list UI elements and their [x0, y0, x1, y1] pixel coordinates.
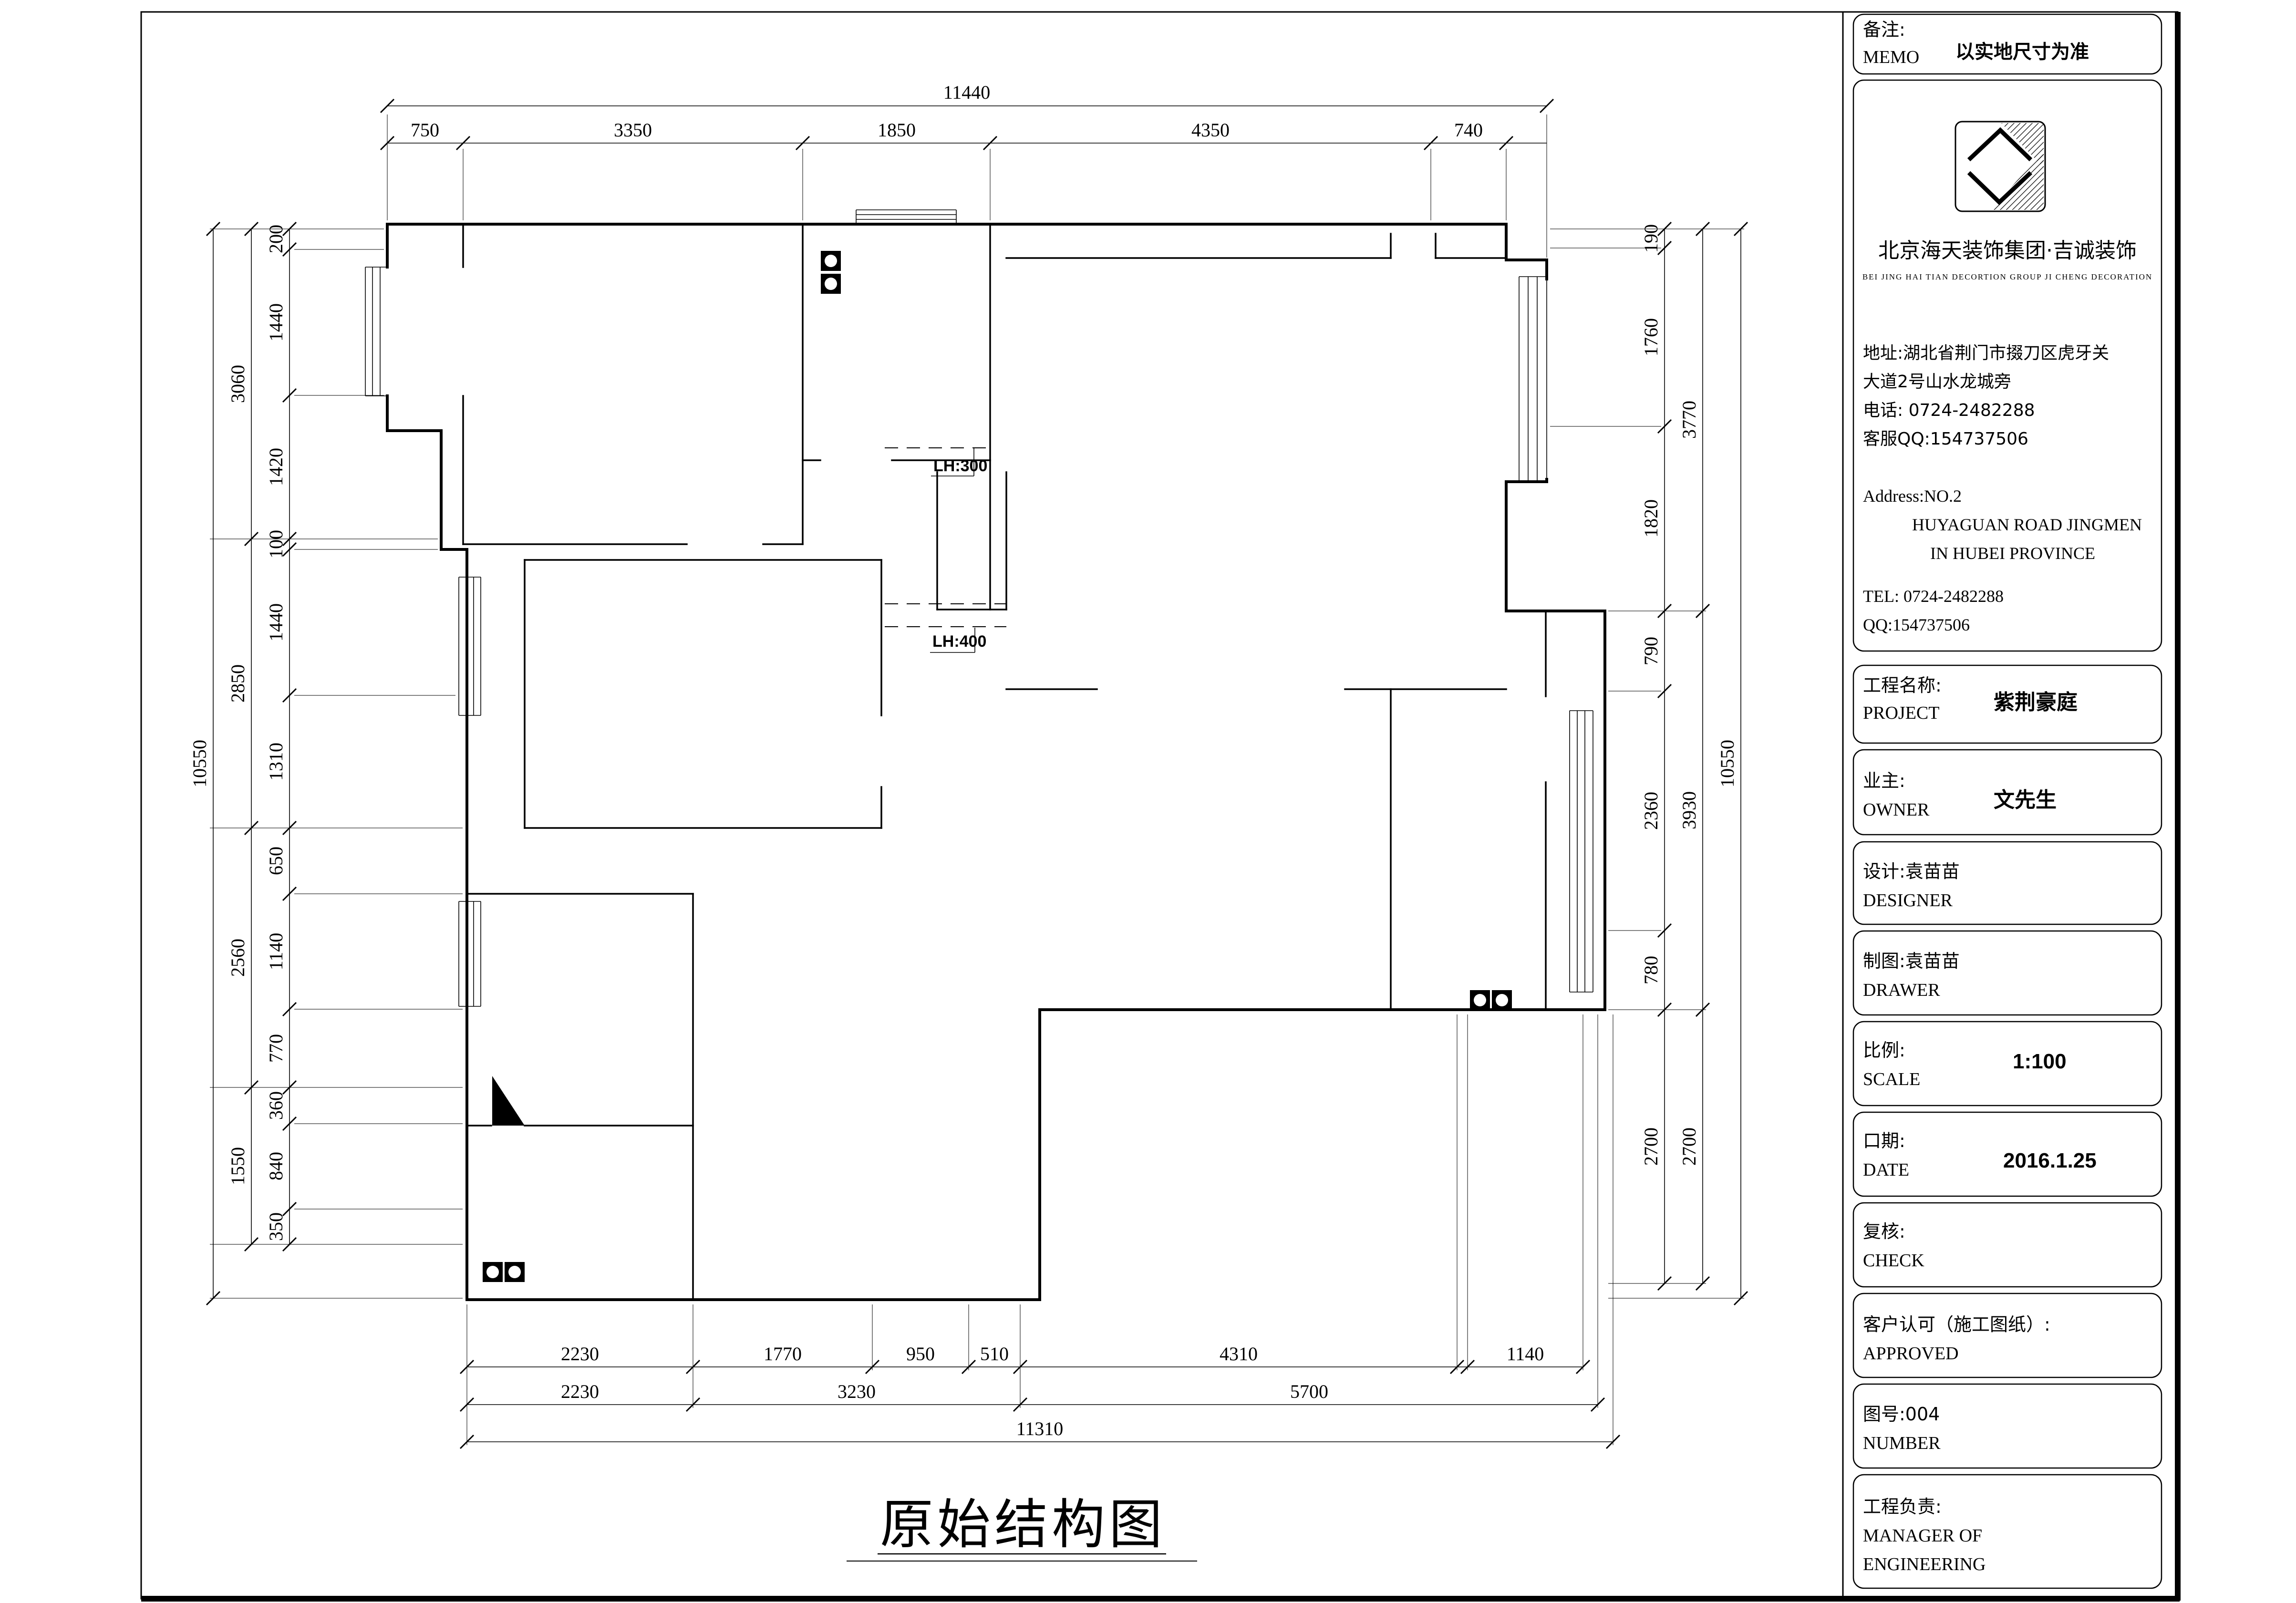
dim-label: 3930 — [1678, 791, 1700, 829]
beam-annotations: LH:300 LH:400 — [885, 448, 1006, 652]
dim-label: 2850 — [227, 664, 248, 703]
project-label-en: PROJECT — [1863, 703, 1939, 723]
dim-label: 1440 — [265, 303, 287, 341]
designer-label-en: DESIGNER — [1863, 890, 1953, 910]
company-address-1: 地址:湖北省荆门市掇刀区虎牙关 — [1863, 343, 2109, 363]
dim-label: 1440 — [265, 603, 287, 641]
drawing-sheet: LH:300 LH:400 11440 750 3350 1850 4350 7… — [0, 0, 2296, 1603]
memo-value: 以实地尺寸为准 — [1955, 41, 2089, 62]
dim-label: 1140 — [265, 933, 287, 971]
title-block: 备注: MEMO 以实地尺寸为准 北京海天装饰集团·吉诚装饰 BEI JING … — [1853, 14, 2162, 1588]
dim-label: 100 — [265, 530, 287, 558]
owner-value: 文先生 — [1994, 788, 2057, 812]
dim-label: 780 — [1640, 956, 1662, 984]
approved-label-cn: 客户认可（施工图纸）: — [1863, 1314, 2050, 1335]
manager-label-en-2: ENGINEERING — [1863, 1554, 1986, 1574]
manager-label-cn: 工程负责: — [1863, 1496, 1942, 1517]
company-address-en-3: IN HUBEI PROVINCE — [1930, 544, 2095, 563]
dim-label: 10550 — [189, 740, 210, 787]
dim-label: 1770 — [764, 1343, 802, 1365]
project-value: 紫荆豪庭 — [1994, 691, 2078, 714]
approved-label-en: APPROVED — [1863, 1344, 1959, 1364]
dim-label: 1850 — [878, 119, 916, 141]
drawer-label-en: DRAWER — [1863, 980, 1940, 1000]
scale-label-en: SCALE — [1863, 1069, 1920, 1089]
company-name-en: BEI JING HAI TIAN DECORTION GROUP JI CHE… — [1862, 272, 2152, 281]
dim-label: 1550 — [227, 1147, 248, 1185]
date-label-en: DATE — [1863, 1160, 1909, 1180]
memo-label-en: MEMO — [1863, 47, 1919, 67]
number-label-en: NUMBER — [1863, 1433, 1941, 1453]
dim-label: 1760 — [1640, 318, 1662, 356]
company-qq: 客服QQ:154737506 — [1863, 429, 2028, 449]
dim-label: 2700 — [1640, 1127, 1662, 1166]
drawing-title-group: 原始结构图 — [847, 1494, 1197, 1561]
dim-label: 11440 — [943, 82, 991, 103]
plan-outer-walls — [387, 224, 1605, 1300]
dim-label: 4350 — [1191, 119, 1230, 141]
designer-label-cn: 设计:袁苗苗 — [1863, 861, 1960, 882]
dim-label: 2230 — [561, 1381, 599, 1402]
check-label-cn: 复核: — [1863, 1221, 1905, 1242]
floorplan-canvas: LH:300 LH:400 11440 750 3350 1850 4350 7… — [0, 0, 2296, 1603]
company-phone: 电话: 0724-2482288 — [1863, 401, 2035, 420]
company-address-en-2: HUYAGUAN ROAD JINGMEN — [1912, 515, 2142, 534]
company-tel-en: TEL: 0724-2482288 — [1863, 587, 2004, 606]
beam-height-label: LH:400 — [932, 632, 986, 651]
drawing-title: 原始结构图 — [880, 1494, 1166, 1556]
dim-label: 5700 — [1290, 1381, 1328, 1402]
company-name: 北京海天装饰集团·吉诚装饰 — [1878, 238, 2137, 263]
date-value: 2016.1.25 — [2003, 1149, 2097, 1172]
plan-inner-walls — [463, 224, 1546, 1300]
dim-label: 11310 — [1016, 1418, 1064, 1439]
dim-label: 360 — [265, 1091, 287, 1120]
date-label-cn: 口期: — [1863, 1130, 1905, 1151]
dim-top: 11440 750 3350 1850 4350 740 — [381, 82, 1553, 258]
dim-label: 1420 — [265, 448, 287, 486]
drawer-label-cn: 制图:袁苗苗 — [1863, 951, 1960, 972]
owner-label-en: OWNER — [1863, 800, 1930, 820]
dim-label: 1140 — [1507, 1343, 1544, 1365]
dim-label: 1310 — [265, 743, 287, 781]
dim-label: 1820 — [1640, 499, 1662, 538]
window-symbols — [365, 210, 1593, 1006]
dim-label: 190 — [1640, 224, 1662, 253]
dim-label: 750 — [411, 119, 439, 141]
door-swing-icon — [492, 1076, 525, 1126]
company-logo-icon — [1955, 122, 2045, 211]
dim-label: 3230 — [838, 1381, 876, 1402]
dim-label: 770 — [265, 1034, 287, 1063]
scale-label-cn: 比例: — [1863, 1040, 1905, 1061]
dim-label: 3770 — [1678, 401, 1700, 439]
dim-label: 840 — [265, 1152, 287, 1180]
dim-label: 2560 — [227, 939, 248, 977]
dim-label: 3350 — [614, 119, 652, 141]
dim-left: 10550 3060 2850 2560 1550 200 1440 1420 … — [189, 222, 463, 1305]
scale-value: 1:100 — [2013, 1050, 2067, 1073]
dim-label: 3060 — [227, 365, 248, 403]
dim-label: 740 — [1454, 119, 1483, 141]
dim-label: 510 — [980, 1343, 1009, 1365]
dim-label: 4310 — [1220, 1343, 1258, 1365]
manager-label-en-1: MANAGER OF — [1863, 1526, 1982, 1546]
company-qq-en: QQ:154737506 — [1863, 615, 1970, 634]
company-address-en-1: Address:NO.2 — [1863, 486, 1962, 506]
dim-label: 950 — [906, 1343, 935, 1365]
check-label-en: CHECK — [1863, 1251, 1924, 1271]
company-address-2: 大道2号山水龙城旁 — [1863, 372, 2011, 392]
owner-label-cn: 业主: — [1863, 770, 1905, 791]
dim-label: 2360 — [1640, 792, 1662, 830]
memo-label-cn: 备注: — [1863, 19, 1905, 40]
dim-label: 2230 — [561, 1343, 599, 1365]
project-label-cn: 工程名称: — [1863, 675, 1942, 696]
dim-label: 350 — [265, 1212, 287, 1241]
dim-label: 650 — [265, 847, 287, 875]
number-label-cn: 图号:004 — [1863, 1404, 1940, 1425]
flue-symbols — [483, 251, 1512, 1282]
dim-label: 2700 — [1678, 1127, 1700, 1166]
dim-label: 790 — [1640, 637, 1662, 665]
beam-height-label: LH:300 — [933, 457, 987, 475]
dim-right: 190 1760 1820 790 2360 780 2700 3770 393… — [1550, 222, 1748, 1305]
dim-label: 10550 — [1717, 740, 1738, 787]
